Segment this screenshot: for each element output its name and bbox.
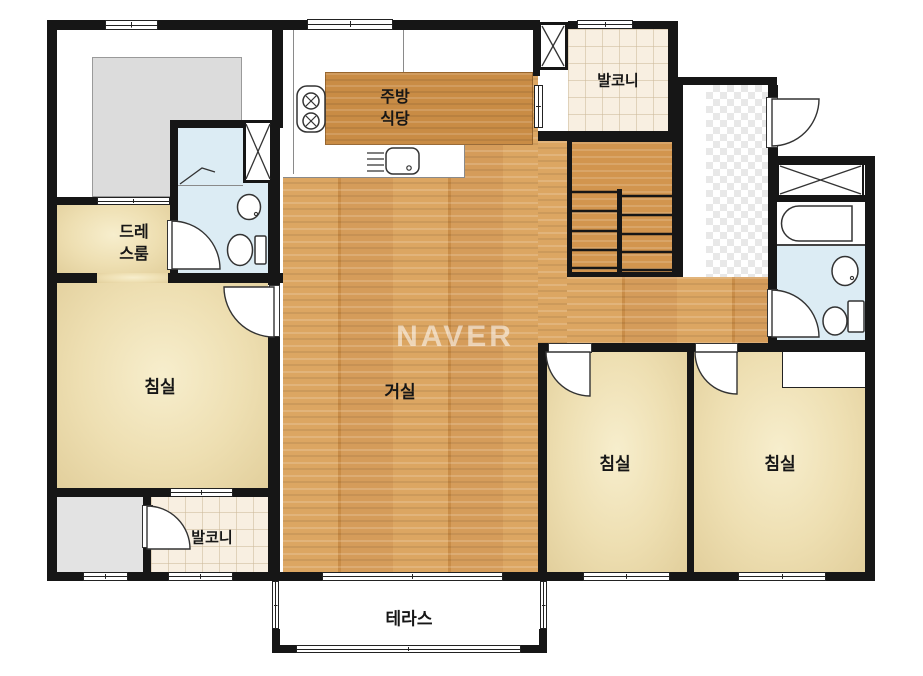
room-label-terrace: 테라스 (386, 605, 433, 630)
door-arc (695, 352, 737, 394)
naver-watermark: NAVER (396, 320, 514, 354)
door-arc (772, 290, 819, 337)
room-label-bedroom-mid: 침실 (599, 450, 630, 475)
room-label-balcony-top: 발코니 (597, 70, 638, 91)
room-label-dressroom-line2: 스룸 (119, 240, 148, 264)
door-arc (172, 221, 220, 269)
room-label-balcony-bottom: 발코니 (191, 527, 232, 548)
door-arc (147, 506, 190, 549)
entrance-door-arc (772, 99, 819, 146)
room-label-living: 거실 (384, 378, 415, 403)
room-label-bedroom-right: 침실 (764, 450, 795, 475)
drainboard-icon (367, 153, 384, 171)
shower-door-icon (180, 168, 215, 184)
toilet-icon (823, 301, 864, 335)
door-arc (546, 352, 590, 396)
stove-icon (297, 86, 325, 132)
room-label-dressroom-line1: 드레 (119, 218, 148, 242)
washbasin-icon (238, 195, 261, 220)
door-arc (224, 287, 274, 337)
washbasin-icon (832, 257, 858, 286)
toilet-icon (228, 235, 267, 266)
sink-icon (386, 148, 419, 174)
room-label-kitchen-line1: 주방 (380, 83, 409, 107)
bathtub-icon (782, 206, 853, 241)
stair-divider (617, 189, 622, 272)
room-label-kitchen-line2: 식당 (380, 105, 409, 129)
room-label-bedroom-left: 침실 (144, 373, 175, 398)
floor-plan: 발코니 주방 식당 드레 스룸 침실 거실 발코니 침실 침실 테라스 NAVE… (0, 0, 923, 676)
